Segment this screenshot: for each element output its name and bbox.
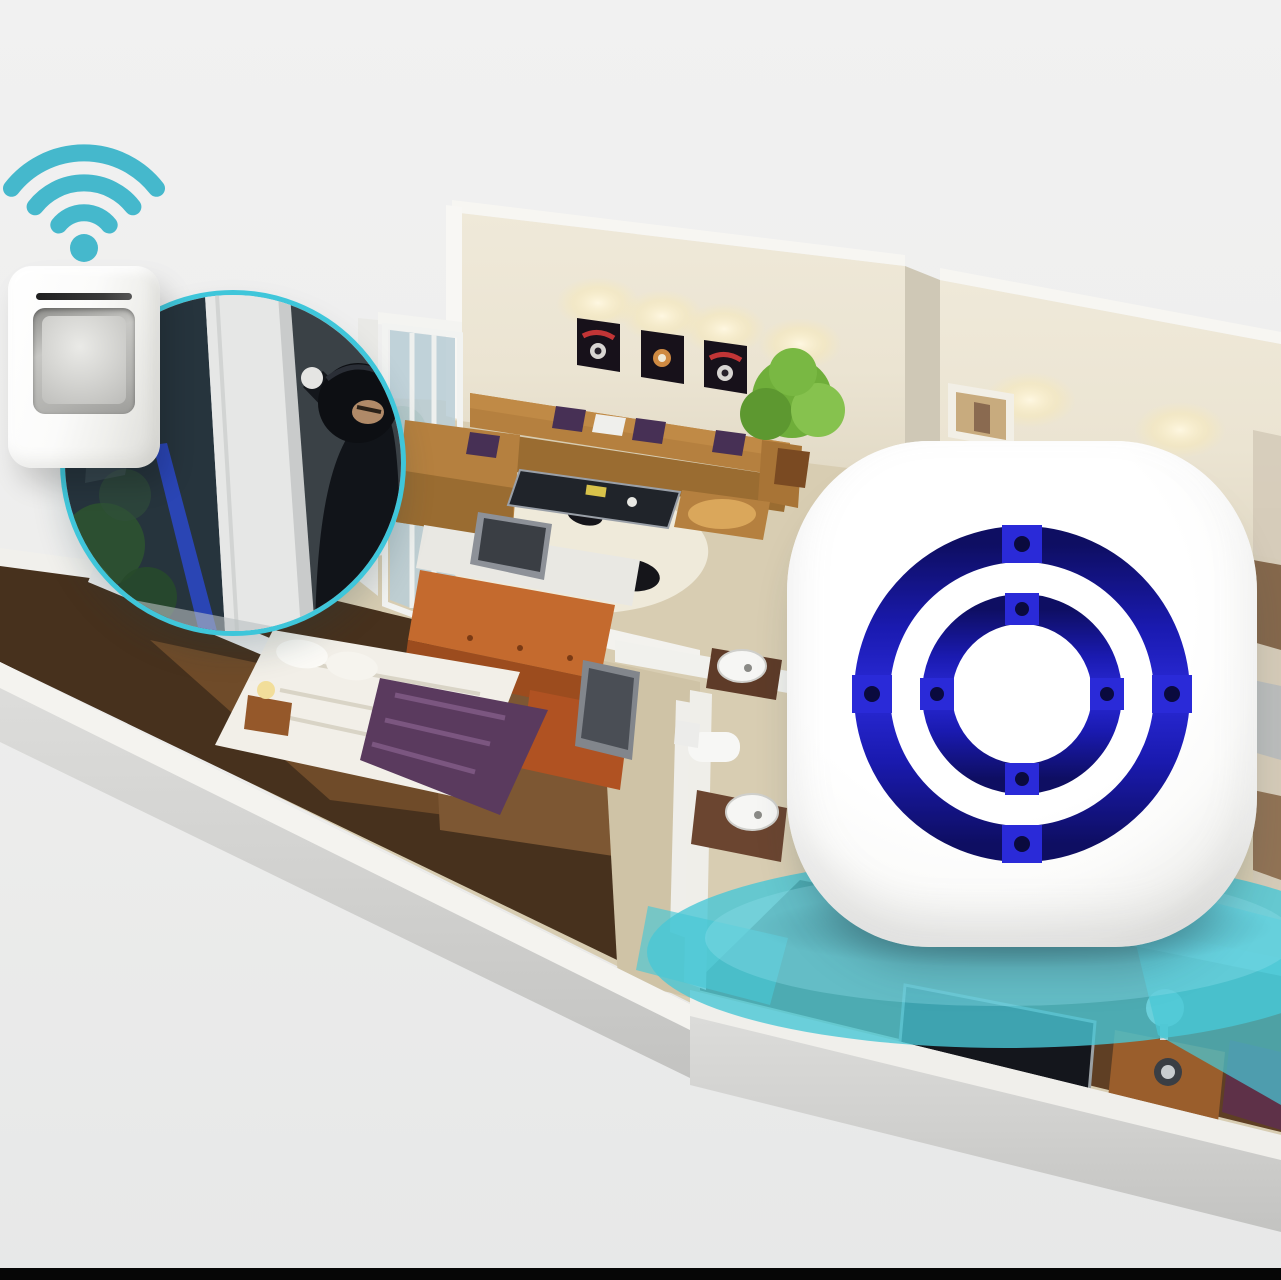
kitchen-strip (1253, 430, 1281, 950)
sensor-pir-lens (33, 308, 135, 414)
receiver-speaker-rings (787, 441, 1257, 947)
sensor-lens-window (42, 316, 126, 404)
inner-ring-led-tabs (920, 593, 1124, 795)
product-illustration (0, 0, 1281, 1280)
wifi-icon (0, 136, 170, 266)
alarm-receiver (787, 441, 1257, 947)
bottom-bar (0, 1268, 1281, 1280)
sensor-vent-slot (36, 293, 132, 300)
motion-sensor (8, 266, 160, 468)
